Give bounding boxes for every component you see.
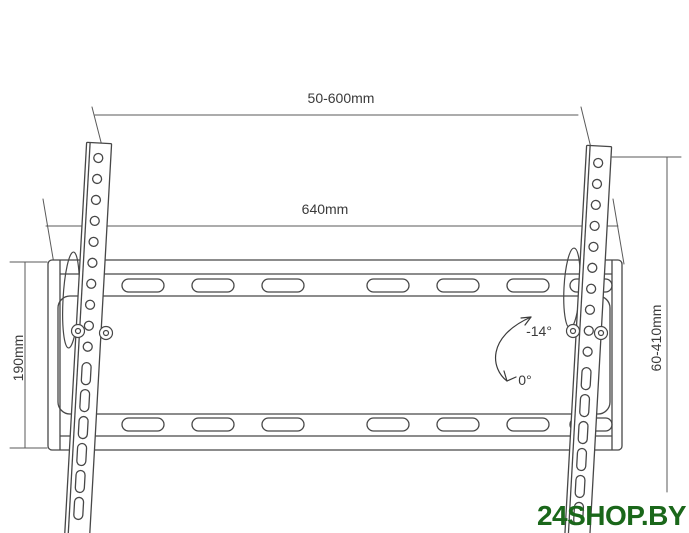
dimension-label-plate-width: 640mm	[302, 201, 349, 217]
wall-plate	[48, 260, 622, 450]
dimension-label-height-range: 60-410mm	[648, 305, 664, 372]
dim-line-bracket-spread	[92, 107, 591, 148]
shop-watermark: 24SHOP.BY	[537, 500, 686, 532]
tilt-min-label: 0°	[518, 372, 531, 388]
dimension-label-bracket-spread: 50-600mm	[308, 90, 375, 106]
dimension-label-plate-height: 190mm	[10, 335, 26, 382]
product-diagram: 50-600mm 640mm 190mm 60-410mm -14° 0° 24…	[0, 0, 689, 533]
wall-mount-drawing	[0, 0, 689, 533]
tilt-max-label: -14°	[526, 323, 552, 339]
